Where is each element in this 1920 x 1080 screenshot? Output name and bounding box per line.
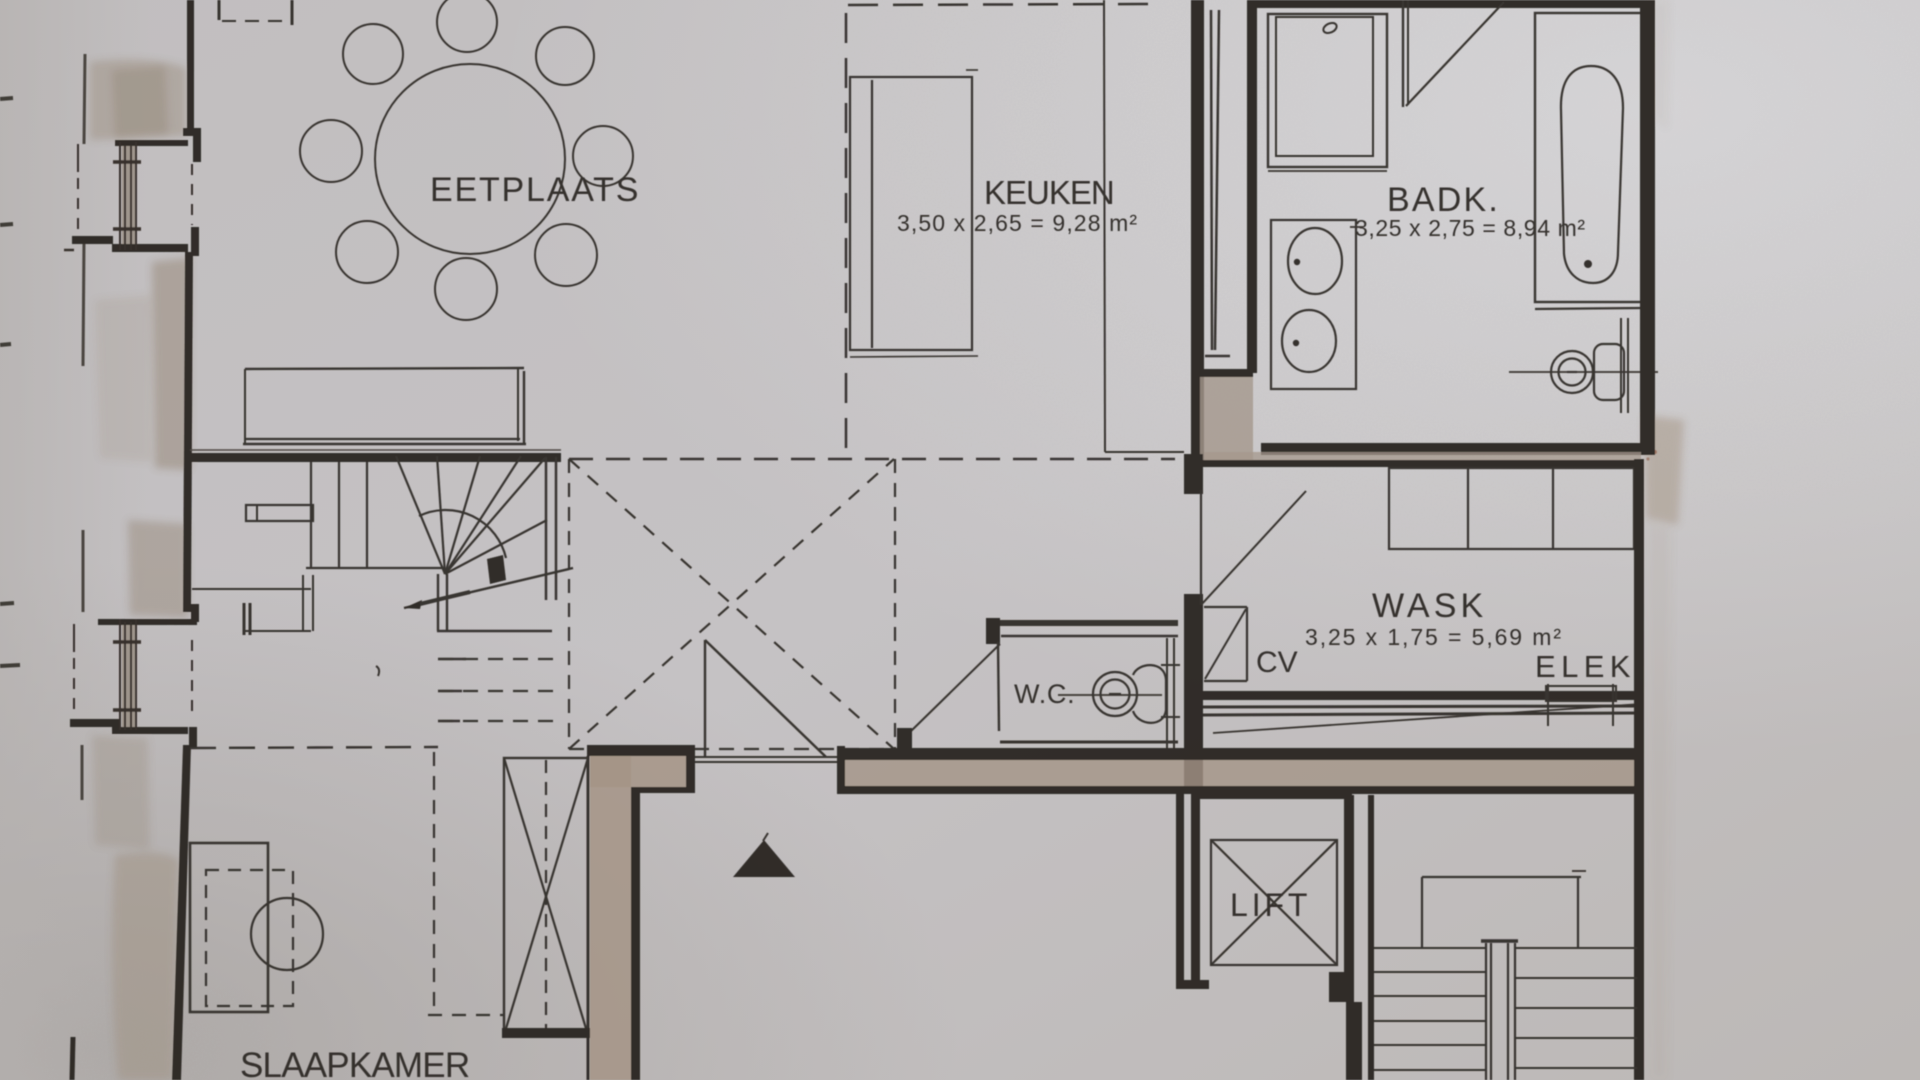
- svg-text:W.C.: W.C.: [1014, 679, 1075, 709]
- svg-text:3,50 x 2,65 = 9,28 m²: 3,50 x 2,65 = 9,28 m²: [897, 210, 1138, 236]
- svg-text:KEUKEN: KEUKEN: [984, 174, 1114, 211]
- svg-text:EETPLAATS: EETPLAATS: [430, 171, 640, 209]
- svg-text:BADK.: BADK.: [1387, 181, 1500, 219]
- svg-text:ELEK: ELEK: [1535, 649, 1636, 684]
- svg-text:LIFT: LIFT: [1230, 887, 1311, 923]
- svg-text:CV: CV: [1256, 646, 1298, 679]
- svg-text:3,25 x 2,75 = 8,94 m²: 3,25 x 2,75 = 8,94 m²: [1355, 215, 1586, 241]
- svg-text:WASK: WASK: [1372, 587, 1487, 625]
- svg-text:SLAAPKAMER: SLAAPKAMER: [240, 1046, 469, 1080]
- svg-text:3,25 x 1,75 = 5,69 m²: 3,25 x 1,75 = 5,69 m²: [1305, 624, 1563, 650]
